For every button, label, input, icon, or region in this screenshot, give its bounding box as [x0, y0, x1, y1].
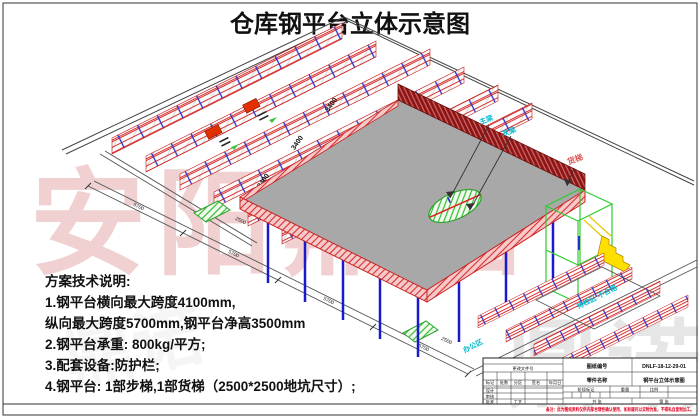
sign-label: 签名 — [532, 379, 540, 386]
cad-canvas: 安阳鼎诺 鼎诺 鼎诺 仓库钢平台立体示意图 5700 5700 5700 570… — [0, 0, 700, 418]
part-name-label: 零件名称 — [586, 376, 609, 384]
count-label: 处数 — [500, 379, 509, 386]
date-label: 年月日 — [549, 379, 562, 386]
sheet-index-label: 第 张 — [659, 398, 669, 405]
drawing-no-label: 图纸编号 — [587, 362, 608, 370]
design-label: 设计 — [486, 387, 494, 394]
process-label: 工艺 — [514, 400, 522, 405]
stage-label: 阶段标记 — [578, 386, 596, 393]
part-name-value: 钢平台立体示意图 — [643, 376, 685, 384]
label-office-area: 办公区 — [461, 337, 484, 355]
weight-label: 重量 — [621, 386, 629, 393]
red-disclaimer: 备注：此为图纸资料仅供内部合理性确认使用，如有疑问以实物为准，不得私自复制加工。 — [545, 406, 694, 413]
notes-line: 4.钢平台: 1部步梯,1部货梯（2500*2500地坑尺寸）; — [45, 378, 356, 394]
notes-line: 3.配套设备:防护栏; — [45, 357, 160, 373]
drawing-sheet: 安阳鼎诺 鼎诺 鼎诺 仓库钢平台立体示意图 5700 5700 5700 570… — [0, 0, 700, 418]
drawing-title: 仓库钢平台立体示意图 — [229, 10, 470, 38]
dim-2500: 2500 — [440, 336, 453, 346]
notes-line: 纵向最大跨度5700mm,钢平台净高3500mm — [45, 315, 305, 331]
notes-line: 2.钢平台承重: 800kg/平方; — [45, 336, 206, 352]
drawing-no-value: DNLF-18-12-29-01 — [642, 364, 686, 370]
green-arrow-icon — [269, 117, 277, 123]
mark-label: 标记 — [486, 379, 495, 386]
scale-label: 比例 — [650, 386, 658, 393]
elevator-pit — [403, 321, 438, 342]
approve-label: 批准 — [486, 399, 494, 406]
notes-heading: 方案技术说明: — [45, 273, 131, 289]
change-doc-label: 更改文件号 — [513, 365, 534, 372]
zone-label: 分区 — [514, 379, 522, 386]
label-freight-elevator: 货梯 — [565, 152, 584, 167]
sheet-total-label: 共 张 — [592, 398, 602, 405]
notes-line: 1.钢平台横向最大跨度4100mm, — [45, 294, 236, 310]
